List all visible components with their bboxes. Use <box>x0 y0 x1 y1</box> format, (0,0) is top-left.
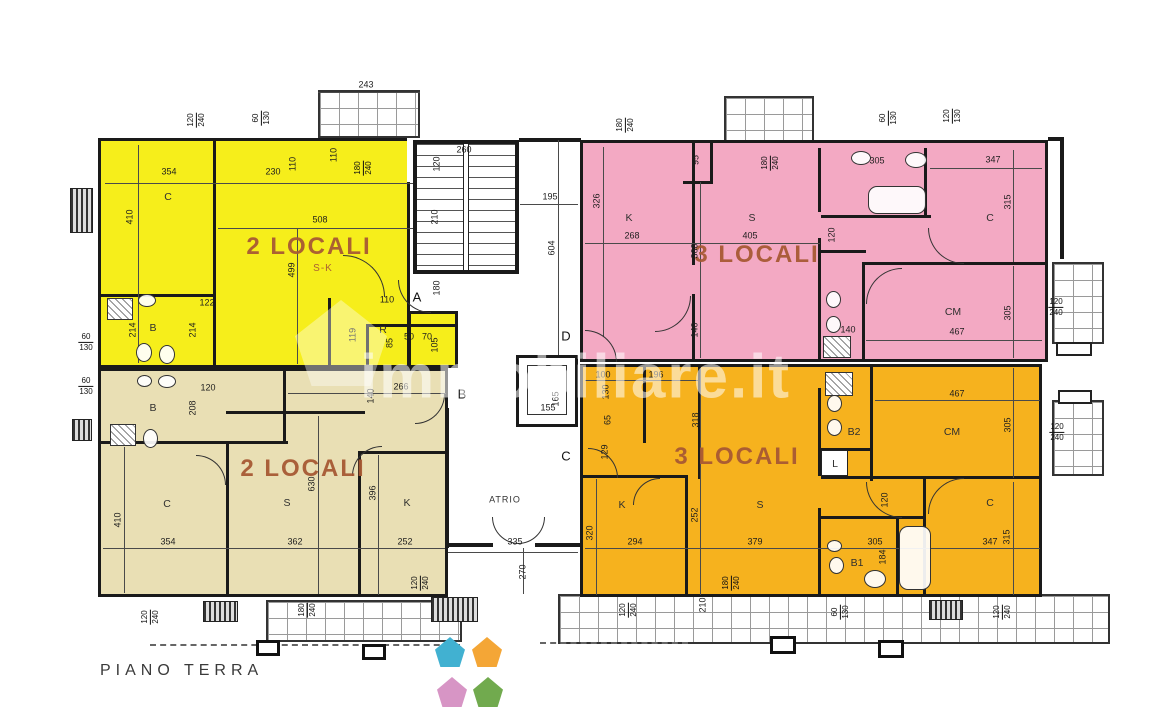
window-size-label: 60130 <box>830 604 850 619</box>
shower-icon <box>107 298 133 320</box>
dimension-label-vertical: 65 <box>604 415 613 425</box>
sanitary-fixture-icon <box>864 570 886 588</box>
dimension-label: 140 <box>840 326 855 335</box>
dimension-line <box>700 182 701 358</box>
room-name-label: L <box>832 459 838 470</box>
window-size-label: 180240 <box>353 160 373 175</box>
radiator-grate <box>929 600 963 620</box>
dimension-label-vertical: 396 <box>369 485 378 500</box>
dimension-label: 354 <box>160 538 175 547</box>
dimension-label: 467 <box>949 390 964 399</box>
dimension-label-vertical: 210 <box>699 597 708 612</box>
room-name-label: B1 <box>851 558 864 569</box>
sanitary-fixture-icon <box>851 151 871 165</box>
wall <box>685 477 688 597</box>
dimension-line <box>585 380 698 381</box>
wall <box>519 138 581 142</box>
window-size-label: 120240 <box>618 602 638 617</box>
dimension-line <box>138 145 139 363</box>
dimension-label-vertical: 120 <box>433 156 442 171</box>
wall <box>862 262 865 360</box>
dimension-label-vertical: 180 <box>433 280 442 295</box>
window-size-label: 120240 <box>140 609 160 624</box>
section-letter-label: D <box>561 330 570 343</box>
window-size-label: 120240 <box>410 575 430 590</box>
dimension-label: 294 <box>627 538 642 547</box>
window-size-label: 180240 <box>297 602 317 617</box>
dimension-label-vertical: 208 <box>189 400 198 415</box>
room-name-label: B <box>149 403 156 414</box>
sanitary-fixture-icon <box>826 316 841 333</box>
dimension-line <box>105 183 453 184</box>
dimension-line <box>596 479 597 595</box>
room-name-label: S <box>756 500 763 511</box>
dimension-line <box>1013 482 1014 595</box>
dimension-label: 405 <box>742 232 757 241</box>
dimension-label-vertical: 604 <box>548 240 557 255</box>
room-name-label: B <box>149 323 156 334</box>
dimension-label-vertical: 410 <box>126 209 135 224</box>
dimension-label-vertical: 315 <box>1004 194 1013 209</box>
wall <box>683 181 713 184</box>
wall <box>535 543 582 547</box>
dimension-line <box>318 416 319 594</box>
dimension-label: 467 <box>949 328 964 337</box>
terrace-post <box>256 640 280 656</box>
dimension-line <box>378 455 379 595</box>
dimension-line <box>520 204 578 205</box>
dimension-label-vertical: 95 <box>692 155 701 165</box>
room-name-label: S <box>748 213 755 224</box>
dimension-label-vertical: 130 <box>602 384 611 399</box>
radiator-grate <box>431 597 478 622</box>
dimension-line <box>866 340 1042 341</box>
dimension-label: 50 <box>404 333 414 342</box>
sanitary-fixture-icon <box>159 345 175 364</box>
wall <box>445 543 493 547</box>
terrace-post <box>362 644 386 660</box>
staircase-divider <box>463 144 469 270</box>
dimension-line <box>1013 368 1014 478</box>
dimension-label: 379 <box>747 538 762 547</box>
wall <box>821 215 931 218</box>
window-size-label: 60130 <box>78 376 93 396</box>
dimension-label-vertical: 305 <box>1004 417 1013 432</box>
dimension-label: 252 <box>397 538 412 547</box>
apartment-sublabel: S-K <box>313 264 333 274</box>
radiator-grate <box>203 601 238 622</box>
dimension-label-vertical: 129 <box>601 444 610 459</box>
sanitary-fixture-icon <box>137 375 152 387</box>
dimension-line <box>103 548 445 549</box>
room-name-label: CM <box>945 307 961 318</box>
dimension-label-vertical: 499 <box>288 262 297 277</box>
dimension-line <box>875 400 1040 401</box>
dimension-label-vertical: 252 <box>691 507 700 522</box>
dimension-label-vertical: 318 <box>692 412 701 427</box>
dimension-line <box>448 552 578 553</box>
bathtub-icon <box>868 186 926 214</box>
floor-plan-canvas: 2 LOCALI3 LOCALI2 LOCALI3 LOCALIS-KCBRKS… <box>0 0 1151 722</box>
wall <box>870 367 873 481</box>
window-size-label: 60130 <box>78 332 93 352</box>
dimension-label: 110 <box>380 296 394 305</box>
dimension-label-vertical: 110 <box>330 148 339 162</box>
section-letter-label: C <box>561 450 570 463</box>
sanitary-fixture-icon <box>827 540 842 552</box>
dimension-label-vertical: 120 <box>881 492 890 507</box>
section-letter-label: A <box>413 291 422 304</box>
dimension-label-vertical: 214 <box>189 322 198 337</box>
dimension-label-vertical: 210 <box>431 209 440 224</box>
apartment-type-label: 2 LOCALI <box>246 235 371 259</box>
dimension-label: 508 <box>312 216 327 225</box>
dimension-line <box>124 447 125 593</box>
shower-icon <box>823 336 851 358</box>
apartment-type-label: 3 LOCALI <box>674 445 799 469</box>
wall <box>821 516 925 519</box>
dimension-label-vertical: 110 <box>289 157 298 171</box>
dimension-line <box>1013 150 1014 262</box>
dimension-label-vertical: 320 <box>586 525 595 540</box>
sanitary-fixture-icon <box>138 294 156 307</box>
dimension-label-vertical: 315 <box>1003 529 1012 544</box>
sanitary-fixture-icon <box>905 152 927 168</box>
room-name-label: K <box>625 213 632 224</box>
flower-box <box>1058 390 1092 404</box>
dimension-label: 335 <box>507 538 522 547</box>
wall <box>818 508 821 597</box>
dimension-label-vertical: 270 <box>519 564 528 579</box>
floor-level-label: PIANO TERRA <box>100 662 263 680</box>
dimension-label: 260 <box>456 146 471 155</box>
dimension-label-vertical: 85 <box>386 338 395 348</box>
window-size-label: 120240 <box>992 604 1012 619</box>
sanitary-fixture-icon <box>143 429 158 448</box>
wall <box>226 411 365 414</box>
window-size-label: 60130 <box>878 110 898 125</box>
radiator-grate <box>72 419 92 441</box>
wall <box>213 141 216 298</box>
dimension-label: 362 <box>287 538 302 547</box>
atrium-label: ATRIO <box>489 496 521 505</box>
dimension-label: 305 <box>867 538 882 547</box>
dimension-label-vertical: 140 <box>367 388 376 403</box>
dimension-label: 268 <box>624 232 639 241</box>
dimension-line <box>930 168 1042 169</box>
dimension-label-vertical: 410 <box>114 512 123 527</box>
logo-house-pink-icon <box>437 677 467 707</box>
dimension-label: 347 <box>982 538 997 547</box>
dimension-label: 243 <box>358 81 373 90</box>
dimension-label-vertical: 214 <box>129 322 138 337</box>
porch-dashed-line <box>540 642 688 644</box>
dimension-label: 230 <box>265 168 280 177</box>
dimension-label: 347 <box>985 156 1000 165</box>
wall <box>445 408 449 548</box>
terrace-post <box>878 640 904 658</box>
dimension-line <box>603 147 604 337</box>
window-size-label: 180240 <box>760 155 780 170</box>
sanitary-fixture-icon <box>829 557 844 574</box>
window-size-label: 180240 <box>615 117 635 132</box>
apartment-type-label: 2 LOCALI <box>240 457 365 481</box>
dimension-label-vertical: 630 <box>308 476 317 491</box>
radiator-grate <box>70 188 93 233</box>
dimension-label-vertical: 305 <box>1004 305 1013 320</box>
sanitary-fixture-icon <box>136 343 152 362</box>
window-size-label: 120240 <box>1049 422 1064 442</box>
wall <box>821 250 866 253</box>
room-name-label: C <box>986 213 994 224</box>
section-letter-label: B <box>458 388 467 401</box>
room-name-label: B2 <box>848 427 861 438</box>
logo-house-orange-icon <box>472 637 502 667</box>
dimension-line <box>700 368 701 595</box>
dimension-label-vertical: 105 <box>431 337 440 352</box>
room-name-label: C <box>163 499 171 510</box>
dimension-line <box>558 140 559 366</box>
room-name-label: C <box>986 498 994 509</box>
dimension-label-vertical: 140 <box>691 322 700 337</box>
dimension-label-vertical: 165 <box>552 391 561 406</box>
dimension-label: 100 <box>595 371 610 380</box>
wall <box>101 294 215 297</box>
room-name-label: K <box>403 498 410 509</box>
dimension-label: 122 <box>199 299 214 308</box>
apartment-type-label: 3 LOCALI <box>694 243 819 267</box>
dimension-label: 120 <box>200 384 215 393</box>
dimension-label-vertical: 184 <box>879 549 888 564</box>
shower-icon <box>825 372 853 396</box>
wall <box>226 443 229 595</box>
dimension-label-vertical: 120 <box>828 227 837 242</box>
logo-house-green-icon <box>473 677 503 707</box>
sanitary-fixture-icon <box>827 419 842 436</box>
shower-icon <box>110 424 136 446</box>
window-size-label: 120240 <box>186 112 206 127</box>
room-name-label: C <box>164 192 172 203</box>
dimension-line <box>318 92 420 93</box>
wall <box>818 148 821 212</box>
room-name-label: K <box>618 500 625 511</box>
flower-box <box>1056 342 1092 356</box>
wall <box>1060 137 1064 259</box>
dimension-label: 195 <box>542 193 557 202</box>
window-size-label: 120240 <box>1048 297 1063 317</box>
wall <box>643 367 646 443</box>
dimension-label-vertical: 326 <box>593 193 602 208</box>
sanitary-fixture-icon <box>827 395 842 412</box>
dimension-label: 196 <box>648 371 663 380</box>
wall <box>821 476 1042 479</box>
dimension-label: 266 <box>393 383 408 392</box>
dimension-label: 305 <box>869 157 884 166</box>
sanitary-fixture-icon <box>158 375 176 388</box>
wall <box>710 143 713 183</box>
room-name-label: S <box>283 498 290 509</box>
window-size-label: 120130 <box>942 108 962 123</box>
porch-dashed-line <box>150 644 460 646</box>
wall <box>283 371 286 444</box>
dimension-line <box>585 548 1040 549</box>
balcony-grid <box>318 90 420 138</box>
dimension-label-vertical: 360 <box>691 243 700 258</box>
sanitary-fixture-icon <box>826 291 841 308</box>
window-size-label: 180240 <box>721 575 741 590</box>
window-size-label: 60130 <box>251 110 271 125</box>
dimension-line <box>1013 266 1014 358</box>
bathtub-icon <box>899 526 931 590</box>
terrace-post <box>770 636 796 654</box>
dimension-label: 354 <box>161 168 176 177</box>
room-name-label: CM <box>944 427 960 438</box>
